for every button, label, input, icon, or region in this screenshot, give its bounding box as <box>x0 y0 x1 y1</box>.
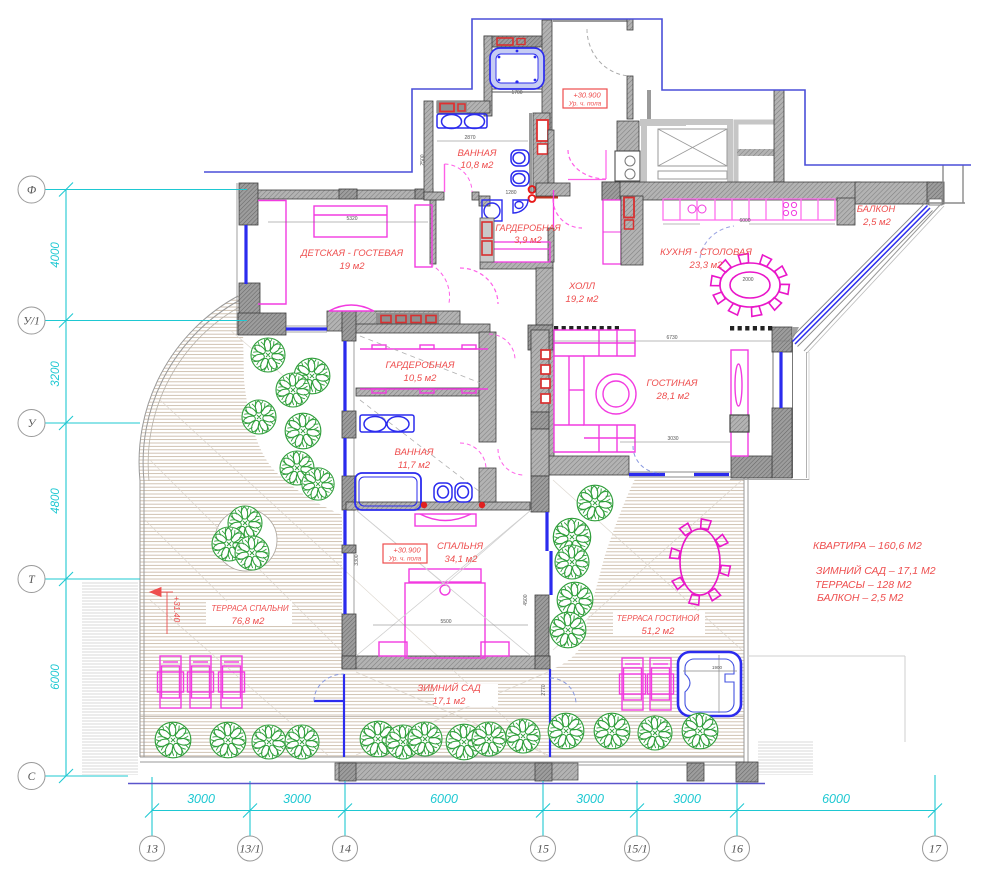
svg-text:1900: 1900 <box>712 665 723 670</box>
svg-text:5320: 5320 <box>346 216 357 222</box>
svg-text:2500: 2500 <box>420 154 426 165</box>
svg-text:3000: 3000 <box>187 792 215 806</box>
svg-text:3000: 3000 <box>283 792 311 806</box>
svg-text:Ур. ч. пола: Ур. ч. пола <box>568 101 602 108</box>
svg-text:БАЛКОН – 2,5 М2: БАЛКОН – 2,5 М2 <box>817 592 903 604</box>
svg-text:3200: 3200 <box>50 361 62 387</box>
svg-text:4800: 4800 <box>50 488 62 514</box>
svg-text:10,8 м2: 10,8 м2 <box>461 160 495 171</box>
svg-text:28,1 м2: 28,1 м2 <box>656 391 691 402</box>
svg-text:ХОЛЛ: ХОЛЛ <box>568 281 596 292</box>
svg-text:3030: 3030 <box>667 436 678 442</box>
svg-text:Ф: Ф <box>27 185 36 197</box>
svg-text:2870: 2870 <box>464 135 475 141</box>
svg-text:ВАННАЯ: ВАННАЯ <box>458 148 497 159</box>
svg-text:3000: 3000 <box>576 792 604 806</box>
svg-text:+30.900: +30.900 <box>573 91 601 100</box>
svg-text:Ур. ч. пола: Ур. ч. пола <box>388 556 422 563</box>
svg-text:14: 14 <box>339 842 351 856</box>
svg-text:11,7 м2: 11,7 м2 <box>398 460 431 471</box>
svg-text:КУХНЯ - СТОЛОВАЯ: КУХНЯ - СТОЛОВАЯ <box>660 247 752 258</box>
svg-text:6000: 6000 <box>822 792 850 806</box>
svg-text:6000: 6000 <box>430 792 458 806</box>
svg-text:51,2 м2: 51,2 м2 <box>642 626 676 637</box>
svg-text:ЗИМНИЙ САД – 17,1 М2: ЗИМНИЙ САД – 17,1 М2 <box>816 564 936 577</box>
svg-text:ГОСТИНАЯ: ГОСТИНАЯ <box>646 378 698 389</box>
svg-text:6000: 6000 <box>50 664 62 690</box>
svg-text:19,2 м2: 19,2 м2 <box>566 294 600 305</box>
svg-text:34,1 м2: 34,1 м2 <box>445 554 479 565</box>
svg-text:15/1: 15/1 <box>626 842 647 856</box>
svg-text:76,8 м2: 76,8 м2 <box>232 616 266 627</box>
svg-text:2,5 м2: 2,5 м2 <box>862 217 891 228</box>
svg-text:5500: 5500 <box>440 619 451 625</box>
svg-text:ЗИМНИЙ САД: ЗИМНИЙ САД <box>417 682 481 694</box>
svg-text:У/1: У/1 <box>23 316 40 328</box>
svg-text:ТЕРРАСА СПАЛЬНИ: ТЕРРАСА СПАЛЬНИ <box>211 604 289 613</box>
svg-text:ДЕТСКАЯ - ГОСТЕВАЯ: ДЕТСКАЯ - ГОСТЕВАЯ <box>300 248 404 259</box>
svg-text:У: У <box>28 418 37 430</box>
svg-text:6730: 6730 <box>666 335 677 341</box>
svg-text:23,3 м2: 23,3 м2 <box>689 260 724 271</box>
svg-text:6000: 6000 <box>739 218 750 224</box>
svg-text:КВАРТИРА – 160,6 М2: КВАРТИРА – 160,6 М2 <box>813 540 922 552</box>
svg-text:+30.900: +30.900 <box>393 546 421 555</box>
svg-text:15: 15 <box>537 842 549 856</box>
svg-text:СПАЛЬНЯ: СПАЛЬНЯ <box>437 541 484 552</box>
svg-text:ВАННАЯ: ВАННАЯ <box>395 447 434 458</box>
svg-text:13: 13 <box>146 842 158 856</box>
svg-text:3000: 3000 <box>673 792 701 806</box>
svg-text:2770: 2770 <box>541 684 547 695</box>
svg-text:17: 17 <box>929 842 942 856</box>
svg-text:16: 16 <box>731 842 743 856</box>
svg-text:ГАРДЕРОБНАЯ: ГАРДЕРОБНАЯ <box>495 223 561 233</box>
svg-text:3,9 м2: 3,9 м2 <box>514 235 542 246</box>
svg-text:13/1: 13/1 <box>239 842 260 856</box>
svg-text:+31.40: +31.40 <box>172 596 182 623</box>
svg-text:ТЕРРАСА ГОСТИНОЙ: ТЕРРАСА ГОСТИНОЙ <box>617 614 700 623</box>
svg-text:17,1 м2: 17,1 м2 <box>433 696 467 707</box>
svg-text:С: С <box>28 771 36 783</box>
svg-text:ТЕРРАСЫ – 128 М2: ТЕРРАСЫ – 128 М2 <box>815 579 912 591</box>
svg-text:4000: 4000 <box>50 242 62 268</box>
svg-text:1280: 1280 <box>505 190 516 196</box>
svg-text:3300: 3300 <box>354 554 360 565</box>
svg-text:ГАРДЕРОБНАЯ: ГАРДЕРОБНАЯ <box>386 360 455 371</box>
svg-text:2000: 2000 <box>742 277 753 283</box>
svg-text:БАЛКОН: БАЛКОН <box>857 204 896 215</box>
svg-text:1700: 1700 <box>511 90 522 96</box>
svg-text:10,5 м2: 10,5 м2 <box>404 373 438 384</box>
svg-text:4500: 4500 <box>523 594 529 605</box>
svg-text:19 м2: 19 м2 <box>339 261 365 272</box>
